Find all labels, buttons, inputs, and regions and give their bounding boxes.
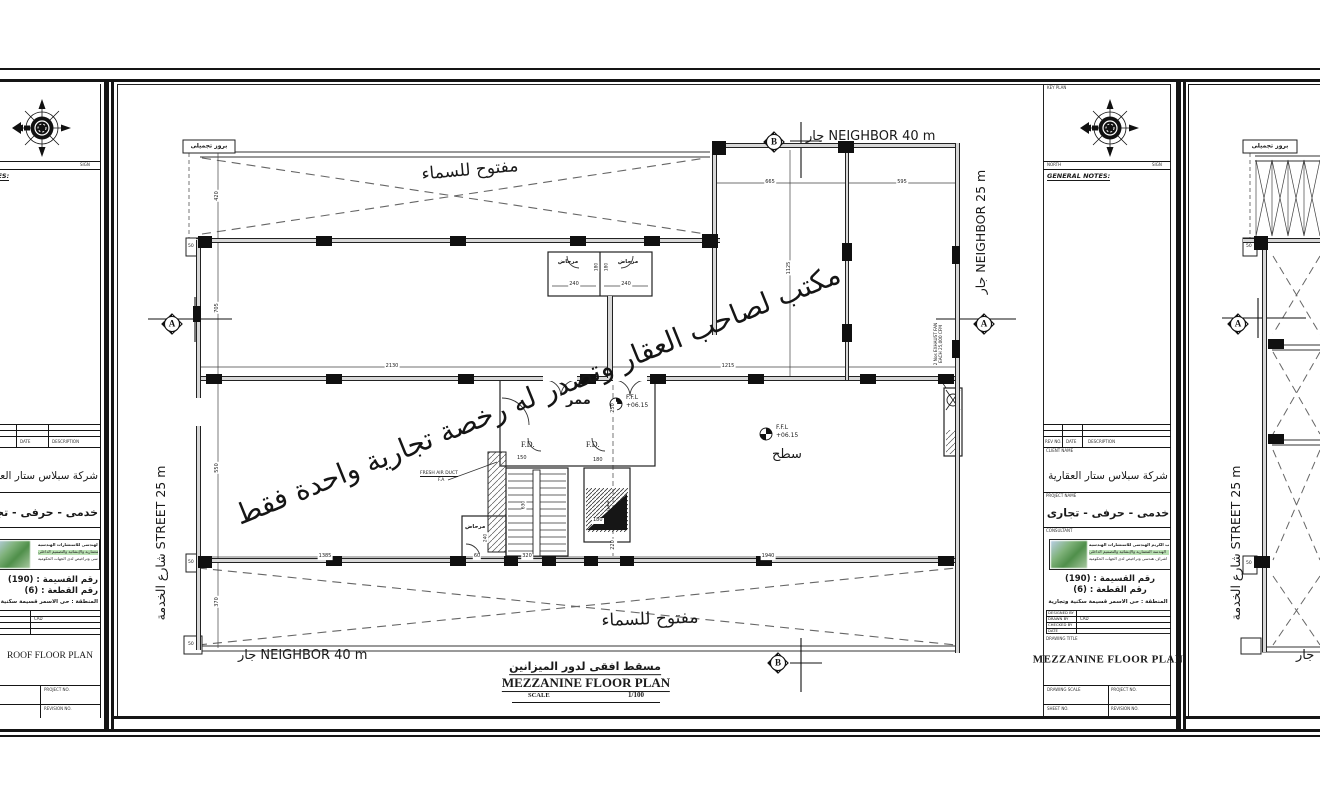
ffl-value-1: +06.15 bbox=[626, 403, 648, 410]
section-marker-a-right-sheet: A bbox=[1226, 312, 1250, 336]
parcel-number: رقم القسيمة : (190) bbox=[1065, 575, 1155, 585]
dim-150: 150 bbox=[516, 456, 528, 462]
sheet-inner-border bbox=[1188, 84, 1189, 716]
divider bbox=[0, 169, 100, 170]
neighbor-top-label: جار NEIGHBOR 40 m bbox=[806, 130, 935, 145]
section-marker-a-right: A bbox=[972, 312, 996, 336]
north-label: NORTH bbox=[1047, 163, 1061, 168]
fresh-air-duct-sub: F.A bbox=[438, 478, 444, 483]
divider bbox=[0, 704, 100, 705]
dim-1125: 1125 bbox=[787, 261, 793, 276]
staff-table-line bbox=[30, 610, 31, 634]
divider bbox=[1043, 685, 1171, 686]
rev-table-line bbox=[0, 447, 100, 448]
rev-no-header: REV NO. bbox=[1045, 440, 1062, 445]
dim-50: 50 bbox=[1246, 561, 1252, 566]
sheet-border-top bbox=[0, 79, 1320, 82]
rev-date-header: DATE bbox=[1066, 440, 1076, 445]
dim-2130: 2130 bbox=[385, 364, 400, 370]
dim-180: 180 bbox=[604, 262, 609, 273]
drawing-scale-label: DRAWING SCALE bbox=[1047, 688, 1081, 693]
drawing-title-value: MEZZANINE FLOOR PLAN bbox=[1033, 654, 1183, 667]
divider bbox=[1043, 169, 1171, 170]
parcel-number: رقم القسيمة : (190) bbox=[0, 576, 98, 586]
consultant-line1: مكتب الكريم الهندسى للاستشارات الهندسية bbox=[38, 543, 98, 548]
block-number: رقم القطعة : (6) bbox=[0, 587, 98, 597]
drawn-by-label: DRAWN BY bbox=[1048, 617, 1068, 621]
consultant-line1: مكتب الكريم الهندسى للاستشارات الهندسية bbox=[1089, 543, 1169, 548]
sheet-divider bbox=[1176, 79, 1181, 732]
block-number: رقم القطعة : (6) bbox=[1073, 586, 1147, 596]
staff-table-line bbox=[0, 610, 100, 611]
neighbor-partial-right-sheet: جار bbox=[1296, 649, 1314, 664]
staff-table-line bbox=[0, 622, 100, 623]
toilet-label: مرحاض bbox=[618, 259, 638, 265]
project-name-value: خدمى - حرفى - تجارى bbox=[0, 507, 98, 520]
sheet-divider bbox=[111, 79, 114, 732]
cad-drawing-screenshot: KEY PLAN NORTH SIGN GENERAL NOTES: REV N… bbox=[0, 0, 1320, 811]
divider bbox=[40, 685, 41, 718]
dim-180: 180 bbox=[592, 518, 604, 524]
rev-table-line bbox=[1082, 424, 1083, 447]
consultant-line2: الهندسة المعمارية والإنشائية والتصميم ال… bbox=[38, 550, 98, 555]
neighbor-bottom-label: جار NEIGHBOR 40 m bbox=[238, 649, 367, 664]
street-label-center: شارع الخدمة STREET 25 m bbox=[154, 466, 168, 621]
divider bbox=[0, 527, 100, 528]
dim-50: 50 bbox=[1246, 244, 1252, 249]
district: المنطقة : حى الاسمر قسيمة سكنية وتجارية bbox=[1048, 599, 1167, 605]
project-no-label: PROJECT NO. bbox=[1111, 688, 1137, 693]
sheet-inner-border bbox=[1188, 84, 1320, 85]
staff-table-line bbox=[0, 628, 100, 629]
sheet-no-label: SHEET NO. bbox=[1047, 707, 1069, 712]
caption-scale-value: 1/100 bbox=[628, 691, 644, 699]
rev-table-line bbox=[0, 436, 100, 437]
rev-table-line bbox=[1062, 424, 1063, 447]
rev-table-line bbox=[0, 430, 100, 431]
dim-595: 595 bbox=[896, 180, 908, 186]
consultant-line3: اشراف هندسى وتراخيص لدى الجهات الحكومية bbox=[1089, 557, 1169, 562]
consultant-line3: اشراف هندسى وتراخيص لدى الجهات الحكومية bbox=[38, 557, 98, 562]
dim-320: 320 bbox=[521, 554, 533, 560]
caption-scale-label: SCALE bbox=[528, 692, 550, 699]
dim-50: 50 bbox=[188, 560, 194, 565]
revision-no-label: REVISION NO. bbox=[44, 707, 72, 712]
section-letter: A bbox=[981, 319, 988, 329]
dim-180: 180 bbox=[594, 262, 599, 273]
sheet-divider bbox=[1183, 79, 1186, 732]
dim-370: 370 bbox=[215, 596, 221, 608]
dim-60: 60 bbox=[473, 554, 481, 560]
section-letter: B bbox=[771, 137, 777, 147]
client-name-value: شركة سبلاس ستار العقارية bbox=[1048, 470, 1168, 482]
column bbox=[1268, 339, 1284, 349]
neighbor-right-label: جار NEIGHBOR 25 m bbox=[974, 170, 988, 294]
dim-240: 240 bbox=[620, 282, 632, 288]
street-label-right: شارع الخدمة STREET 25 m bbox=[1229, 466, 1243, 621]
dim-630: 630 bbox=[521, 500, 526, 511]
decor-projection-label: بروز تجميلى bbox=[1252, 144, 1289, 151]
open-sky-label-bottom: مفتوح للسماء bbox=[601, 609, 699, 632]
dim-1385: 1385 bbox=[318, 554, 333, 560]
column bbox=[1254, 236, 1268, 250]
caption-rule bbox=[512, 702, 660, 703]
exhaust-fan-note: 2 Nos EXHAUST FAN EACH 25,000 CFM bbox=[933, 323, 943, 365]
divider bbox=[0, 685, 100, 686]
date-row-label: DATE bbox=[1048, 629, 1058, 633]
column bbox=[1268, 434, 1284, 444]
compass-icon bbox=[12, 98, 72, 158]
divider bbox=[1108, 685, 1109, 718]
dim-220: 220 bbox=[611, 539, 617, 551]
sign-label: SIGN bbox=[1152, 163, 1162, 168]
project-name-label: PROJECT NAME bbox=[1046, 494, 1076, 499]
staff-table-line bbox=[0, 634, 100, 635]
drawing-title-value: ROOF FLOOR PLAN bbox=[0, 651, 100, 662]
louver-hatch bbox=[1256, 160, 1320, 236]
drawn-by-value: CAD bbox=[1080, 617, 1089, 622]
roof-label: سطح bbox=[772, 448, 802, 463]
compass-icon bbox=[1080, 98, 1140, 158]
project-name-value: خدمى - حرفى - تجارى bbox=[1047, 508, 1169, 521]
dim-665: 665 bbox=[764, 180, 776, 186]
rev-desc-header: DESCRIPTION bbox=[1088, 440, 1115, 445]
caption-arabic: مسقط افقى لدور الميزانين bbox=[509, 661, 661, 675]
staff-table-line bbox=[1046, 628, 1171, 629]
dim-240: 240 bbox=[483, 533, 488, 544]
section-marker-a-left: A bbox=[160, 312, 184, 336]
staff-table-line bbox=[0, 616, 100, 617]
open-sky-x-right-sheet bbox=[1273, 256, 1320, 645]
consultant-logo-image bbox=[1051, 541, 1087, 568]
general-notes-label: GENERAL NOTES: bbox=[1047, 173, 1110, 181]
exhaust-line2: EACH 25,000 CFM bbox=[938, 325, 943, 363]
paper-edge-top bbox=[0, 68, 1320, 70]
rev-table-line bbox=[48, 424, 49, 447]
client-name-label: CLIENT NAME bbox=[1046, 449, 1073, 454]
general-notes-label: GENERAL NOTES: bbox=[0, 173, 9, 181]
designed-by-label: DESIGNED BY bbox=[1048, 611, 1074, 615]
staff-table-line bbox=[1076, 610, 1077, 634]
dim-550: 550 bbox=[215, 462, 221, 474]
section-marker-b-bottom: B bbox=[766, 651, 790, 675]
rev-table-line bbox=[16, 424, 17, 447]
stair-up-label: صعود bbox=[606, 500, 612, 511]
key-plan-label: KEY PLAN bbox=[1047, 86, 1066, 91]
paper-edge-bottom bbox=[0, 735, 1320, 737]
dim-50: 50 bbox=[188, 642, 194, 647]
ffl-label-1: F.F.L bbox=[626, 395, 638, 402]
project-no-label: PROJECT NO. bbox=[44, 688, 70, 693]
column bbox=[1254, 556, 1270, 568]
rev-date-header: DATE bbox=[20, 440, 30, 445]
sheet-border-bottom bbox=[0, 729, 1320, 732]
divider bbox=[0, 492, 100, 493]
checked-by-label: CHECKED BY bbox=[1048, 623, 1072, 627]
corridor-label: ممر bbox=[566, 394, 591, 409]
revision-no-label: REVISION NO. bbox=[1111, 707, 1139, 712]
dim-240: 240 bbox=[568, 282, 580, 288]
fresh-air-duct-label: FRESH AIR DUCT bbox=[420, 471, 458, 477]
section-letter: B bbox=[775, 658, 781, 668]
sheet-divider bbox=[104, 79, 109, 732]
sign-label: SIGN bbox=[80, 163, 90, 168]
floor-drain-label: F.D. bbox=[586, 440, 600, 449]
client-name-value: شركة سبلاس ستار العقارية bbox=[0, 470, 98, 482]
toilet-label: مرحاض bbox=[558, 259, 578, 265]
rev-table-line bbox=[0, 424, 100, 425]
section-marker-b-top: B bbox=[762, 130, 786, 154]
toilet-label: مرحاض bbox=[465, 524, 485, 530]
caption-english: MEZZANINE FLOOR PLAN bbox=[502, 676, 670, 692]
drawn-by-value: CAD bbox=[34, 617, 43, 622]
dim-1215: 1215 bbox=[721, 364, 736, 370]
sheet-bottom-thick bbox=[113, 716, 1176, 719]
section-letter: A bbox=[169, 319, 176, 329]
titleblock-inner-line bbox=[100, 84, 101, 718]
dim-420: 420 bbox=[215, 190, 221, 202]
decor-projection-label: بروز تجميلى bbox=[191, 144, 228, 151]
section-letter: A bbox=[1235, 319, 1242, 329]
drawing-title-label: DRAWING TITLE bbox=[1046, 637, 1078, 642]
district: المنطقة : حى الاسمر قسيمة سكنية وتجارية bbox=[0, 599, 98, 605]
dim-180: 180 bbox=[592, 458, 604, 464]
dim-1940: 1940 bbox=[761, 554, 776, 560]
consultant-line2: الهندسة المعمارية والإنشائية والتصميم ال… bbox=[1089, 550, 1169, 555]
floor-drain-label: F.D. bbox=[521, 440, 535, 449]
dim-250: 250 bbox=[611, 402, 617, 414]
rev-desc-header: DESCRIPTION bbox=[52, 440, 79, 445]
ffl-value-2: +06.15 bbox=[776, 433, 798, 440]
consultant-label: CONSULTANT bbox=[1046, 529, 1072, 534]
divider bbox=[1043, 704, 1171, 705]
ffl-label-2: F.F.L bbox=[776, 425, 788, 432]
dim-50: 50 bbox=[188, 244, 194, 249]
dim-705: 705 bbox=[215, 302, 221, 314]
wall bbox=[1262, 240, 1267, 652]
sheet-bottom-thick bbox=[1183, 716, 1320, 719]
consultant-logo-image bbox=[0, 541, 30, 568]
